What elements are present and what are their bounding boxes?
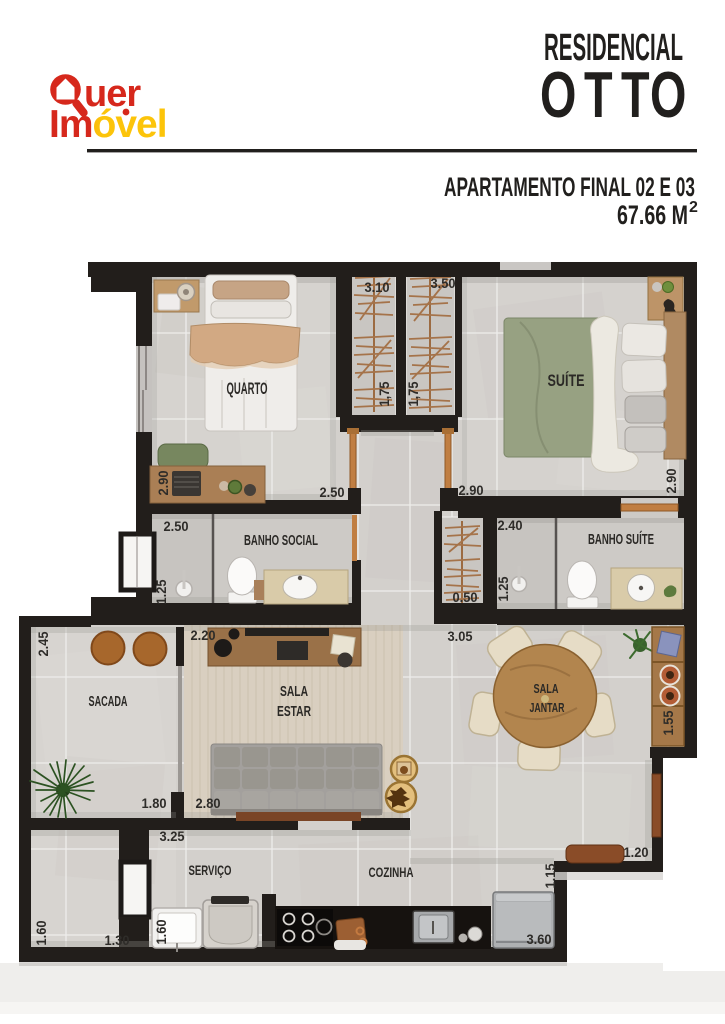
svg-text:3.60: 3.60 (527, 931, 552, 947)
svg-text:0.50: 0.50 (453, 589, 478, 605)
svg-text:JANTAR: JANTAR (530, 700, 565, 715)
svg-text:1.55: 1.55 (660, 710, 676, 735)
svg-text:1.60: 1.60 (153, 919, 169, 944)
svg-text:3.25: 3.25 (160, 828, 185, 844)
svg-text:SALA: SALA (280, 684, 308, 700)
svg-text:3.50: 3.50 (431, 275, 456, 291)
svg-text:1,75: 1,75 (405, 381, 421, 406)
svg-text:2.90: 2.90 (155, 470, 171, 495)
svg-text:1.25: 1.25 (495, 576, 511, 601)
svg-text:1.15: 1.15 (542, 863, 558, 888)
svg-text:SUÍTE: SUÍTE (548, 371, 585, 390)
svg-text:2.50: 2.50 (320, 484, 345, 500)
svg-text:67.66 M: 67.66 M (617, 200, 688, 230)
svg-text:O: O (650, 60, 686, 132)
svg-text:1.25: 1.25 (153, 579, 169, 604)
svg-text:1.60: 1.60 (33, 920, 49, 945)
svg-text:SERVIÇO: SERVIÇO (189, 862, 232, 878)
svg-text:O: O (540, 60, 576, 132)
svg-text:2: 2 (689, 199, 698, 216)
svg-text:2.50: 2.50 (164, 518, 189, 534)
svg-text:T: T (584, 60, 613, 132)
svg-text:1.20: 1.20 (624, 844, 649, 860)
svg-text:2.80: 2.80 (196, 795, 221, 811)
svg-text:ESTAR: ESTAR (277, 704, 311, 720)
svg-text:2.90: 2.90 (459, 482, 484, 498)
svg-text:1,75: 1,75 (376, 381, 392, 406)
svg-text:3.10: 3.10 (365, 279, 390, 295)
svg-text:QUARTO: QUARTO (227, 380, 268, 398)
svg-text:BANHO SUÍTE: BANHO SUÍTE (588, 531, 654, 548)
svg-text:1.80: 1.80 (142, 795, 167, 811)
svg-text:2.20: 2.20 (191, 627, 216, 643)
svg-text:2.90: 2.90 (663, 468, 679, 493)
svg-text:COZINHA: COZINHA (369, 864, 414, 880)
svg-text:2.45: 2.45 (35, 631, 51, 656)
svg-text:2.40: 2.40 (498, 517, 523, 533)
svg-text:T: T (621, 60, 650, 132)
svg-text:SACADA: SACADA (89, 694, 128, 710)
svg-text:BANHO SOCIAL: BANHO SOCIAL (244, 533, 318, 549)
svg-text:1.30: 1.30 (105, 932, 130, 948)
svg-text:APARTAMENTO FINAL 02 E 03: APARTAMENTO FINAL 02 E 03 (444, 172, 695, 202)
svg-text:SALA: SALA (534, 681, 559, 696)
svg-text:Imóvel: Imóvel (49, 103, 167, 146)
svg-text:3.05: 3.05 (448, 628, 473, 644)
